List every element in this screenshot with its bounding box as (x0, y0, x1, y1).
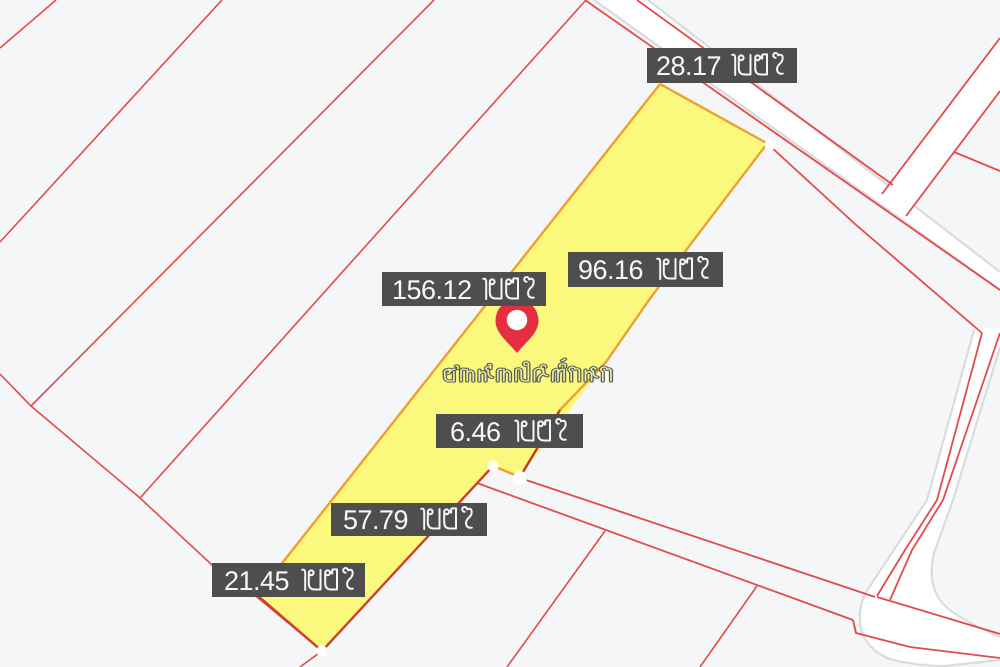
svg-text:57.79: 57.79 (343, 505, 408, 535)
svg-text:6.46: 6.46 (450, 417, 501, 447)
svg-text:156.12: 156.12 (392, 275, 472, 305)
svg-text:21.45: 21.45 (224, 566, 289, 596)
svg-text:96.16: 96.16 (578, 255, 643, 285)
svg-text:28.17: 28.17 (656, 51, 721, 81)
